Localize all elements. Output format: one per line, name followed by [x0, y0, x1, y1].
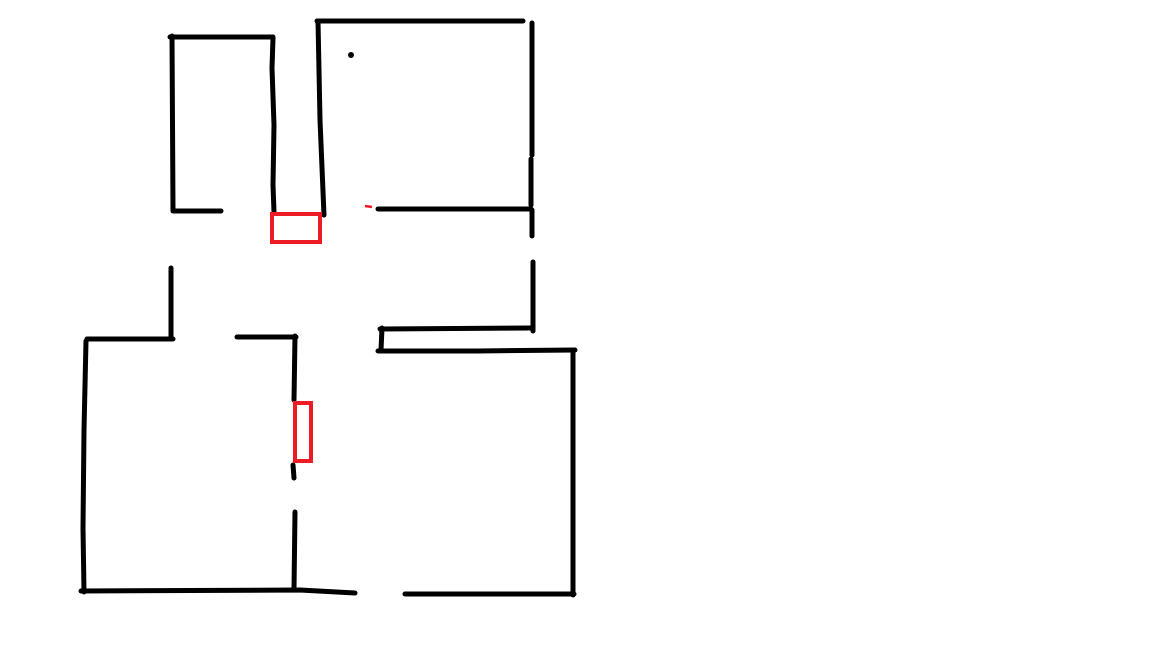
door-marker-vertical: [295, 403, 311, 461]
floorplan-sketch-canvas[interactable]: [0, 0, 1152, 648]
wall-stroke-inner-partition-lower: [294, 512, 295, 589]
pen-dot: [348, 52, 354, 58]
wall-stroke-inner-partition-upper: [294, 336, 295, 400]
wall-stroke-top-left-room-left-wall: [172, 36, 173, 210]
floorplan-sketch-drawing: [0, 0, 1152, 648]
wall-stroke-bottom-right-room-upper-top-wall: [380, 328, 532, 329]
wall-stroke-top-right-room-left-wall: [318, 21, 324, 215]
red-dash-mark: [365, 206, 372, 207]
wall-stroke-bottom-left-room-left-wall: [83, 341, 86, 592]
wall-stroke-bottom-right-room-left-stub: [381, 328, 382, 350]
wall-stroke-inner-partition-middle: [293, 465, 294, 478]
wall-stroke-top-left-room-right-wall: [272, 38, 274, 212]
wall-stroke-bottom-left-room-bottom-wall: [81, 590, 355, 593]
door-marker-horizontal: [272, 214, 320, 242]
wall-stroke-bottom-right-room-lower-top-wall: [378, 350, 575, 351]
